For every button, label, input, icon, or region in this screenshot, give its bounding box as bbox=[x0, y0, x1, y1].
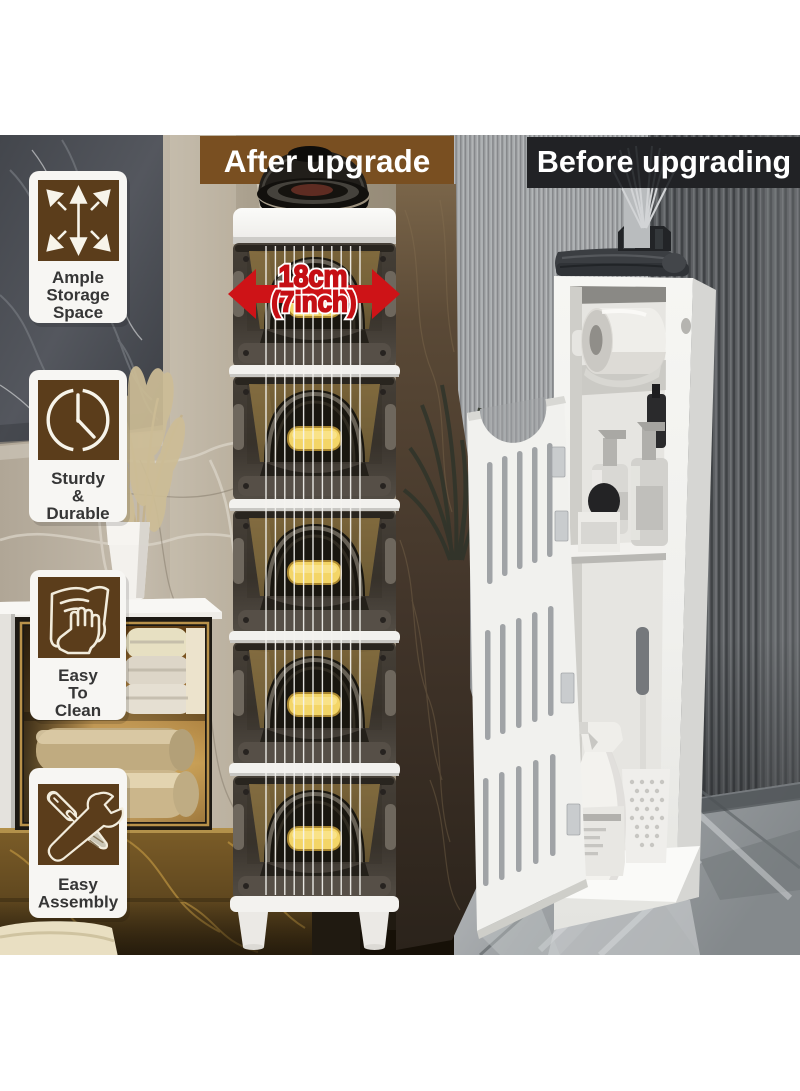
svg-text:Sturdy: Sturdy bbox=[51, 469, 105, 488]
svg-text:Ample: Ample bbox=[52, 268, 104, 287]
svg-text:(7inch): (7inch) bbox=[271, 285, 356, 318]
svg-text:After upgrade: After upgrade bbox=[224, 143, 431, 179]
svg-text:&: & bbox=[72, 487, 84, 506]
svg-text:To: To bbox=[68, 684, 88, 703]
svg-text:Durable: Durable bbox=[46, 504, 109, 523]
svg-text:Assembly: Assembly bbox=[38, 893, 119, 912]
svg-text:Easy: Easy bbox=[58, 666, 98, 685]
svg-text:Clean: Clean bbox=[55, 701, 101, 720]
svg-text:Storage: Storage bbox=[46, 286, 109, 305]
svg-text:Space: Space bbox=[53, 303, 103, 322]
svg-text:Before upgrading: Before upgrading bbox=[537, 145, 791, 179]
svg-text:Easy: Easy bbox=[58, 875, 98, 894]
